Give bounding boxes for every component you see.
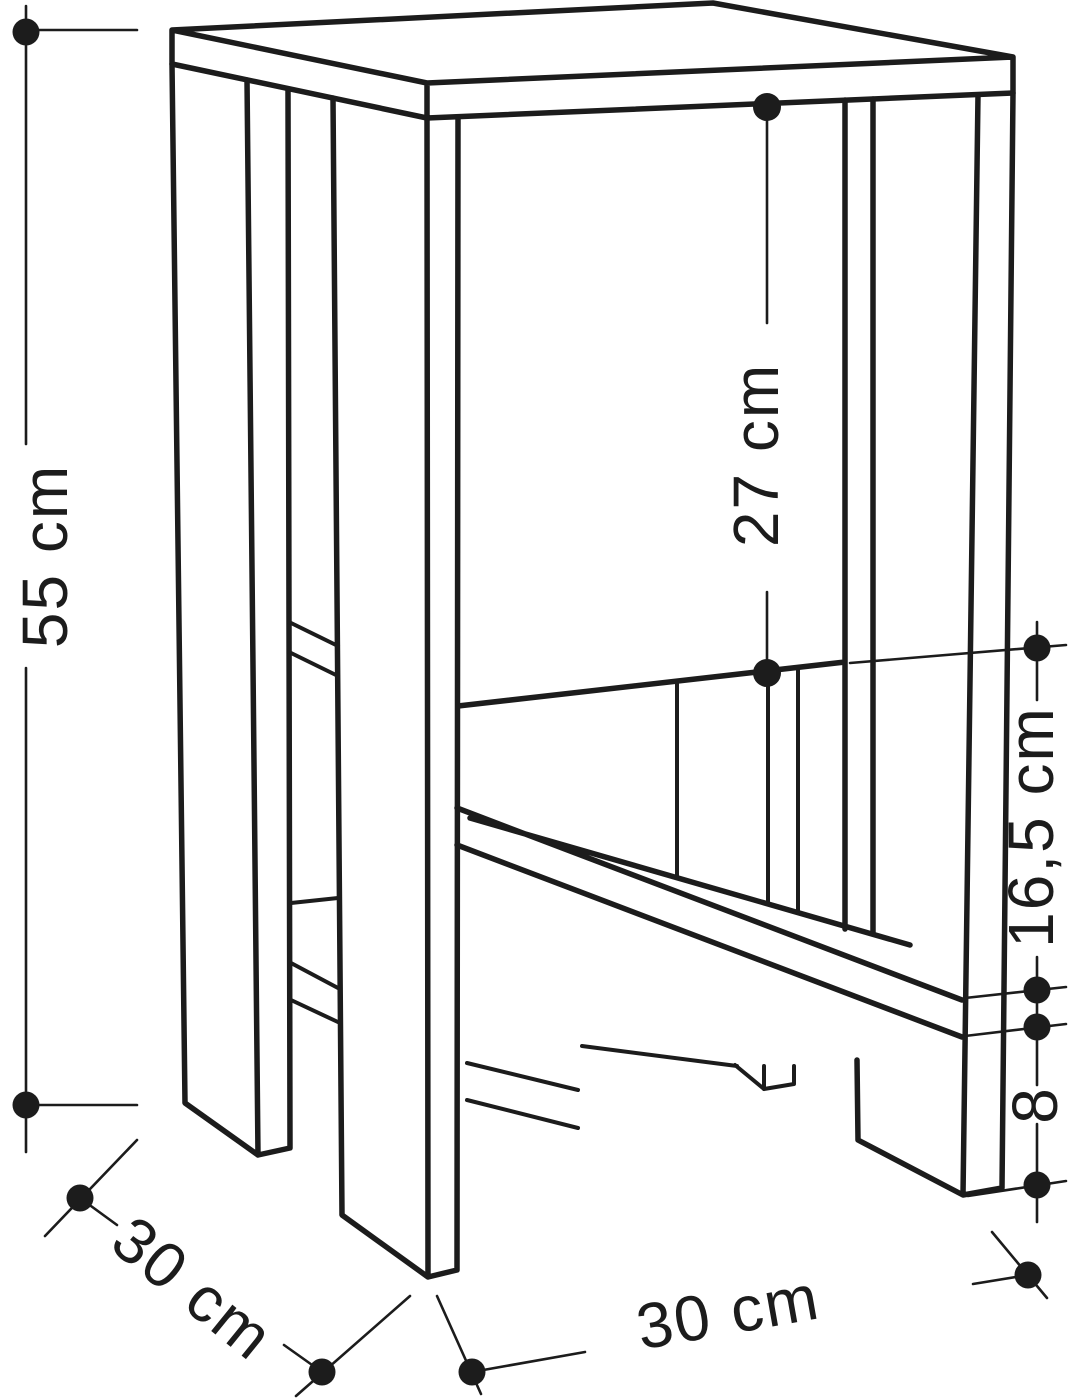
dimension-height: 55 cm [9, 6, 137, 1152]
left-side-rails [289, 622, 340, 1023]
dimension-width: 30 cm [437, 1232, 1047, 1394]
dimension-dot [1024, 1172, 1051, 1199]
table-drawing [172, 3, 1013, 1277]
compartment-label: 27 cm [720, 363, 792, 547]
tabletop [172, 3, 1013, 118]
dimension-dot [1024, 635, 1051, 662]
dimension-diagram: 55 cm 27 cm 16,5 cm 8 30 cm [0, 0, 1070, 1400]
dimension-dot [753, 93, 781, 121]
height-label: 55 cm [9, 464, 81, 648]
depth-label: 30 cm [99, 1202, 288, 1374]
leg-back-left [172, 64, 290, 1155]
dimension-depth: 30 cm [45, 1140, 410, 1396]
width-label: 30 cm [631, 1261, 825, 1364]
under-shelf-rails [467, 1046, 794, 1128]
dimension-dot [1024, 1014, 1051, 1041]
side-table-dimension-drawing: 55 cm 27 cm 16,5 cm 8 30 cm [0, 0, 1070, 1400]
dimension-dot [13, 1092, 40, 1119]
side-panel [458, 99, 873, 934]
dimension-dot [13, 19, 40, 46]
dimension-compartment: 27 cm [720, 93, 792, 687]
dimension-dot [67, 1185, 94, 1212]
shelf-opening-label: 16,5 cm [995, 706, 1067, 948]
dimension-dot [459, 1359, 486, 1386]
leg-front [333, 98, 458, 1277]
dimension-dot [753, 659, 781, 687]
clearance-label: 8 [999, 1086, 1070, 1124]
dimension-dot [1024, 977, 1051, 1004]
compartment-interior-lines [677, 670, 798, 912]
shelf [457, 808, 962, 1037]
dimension-dot [309, 1359, 336, 1386]
dimension-dot [1015, 1262, 1042, 1289]
leg-right [857, 93, 1013, 1195]
